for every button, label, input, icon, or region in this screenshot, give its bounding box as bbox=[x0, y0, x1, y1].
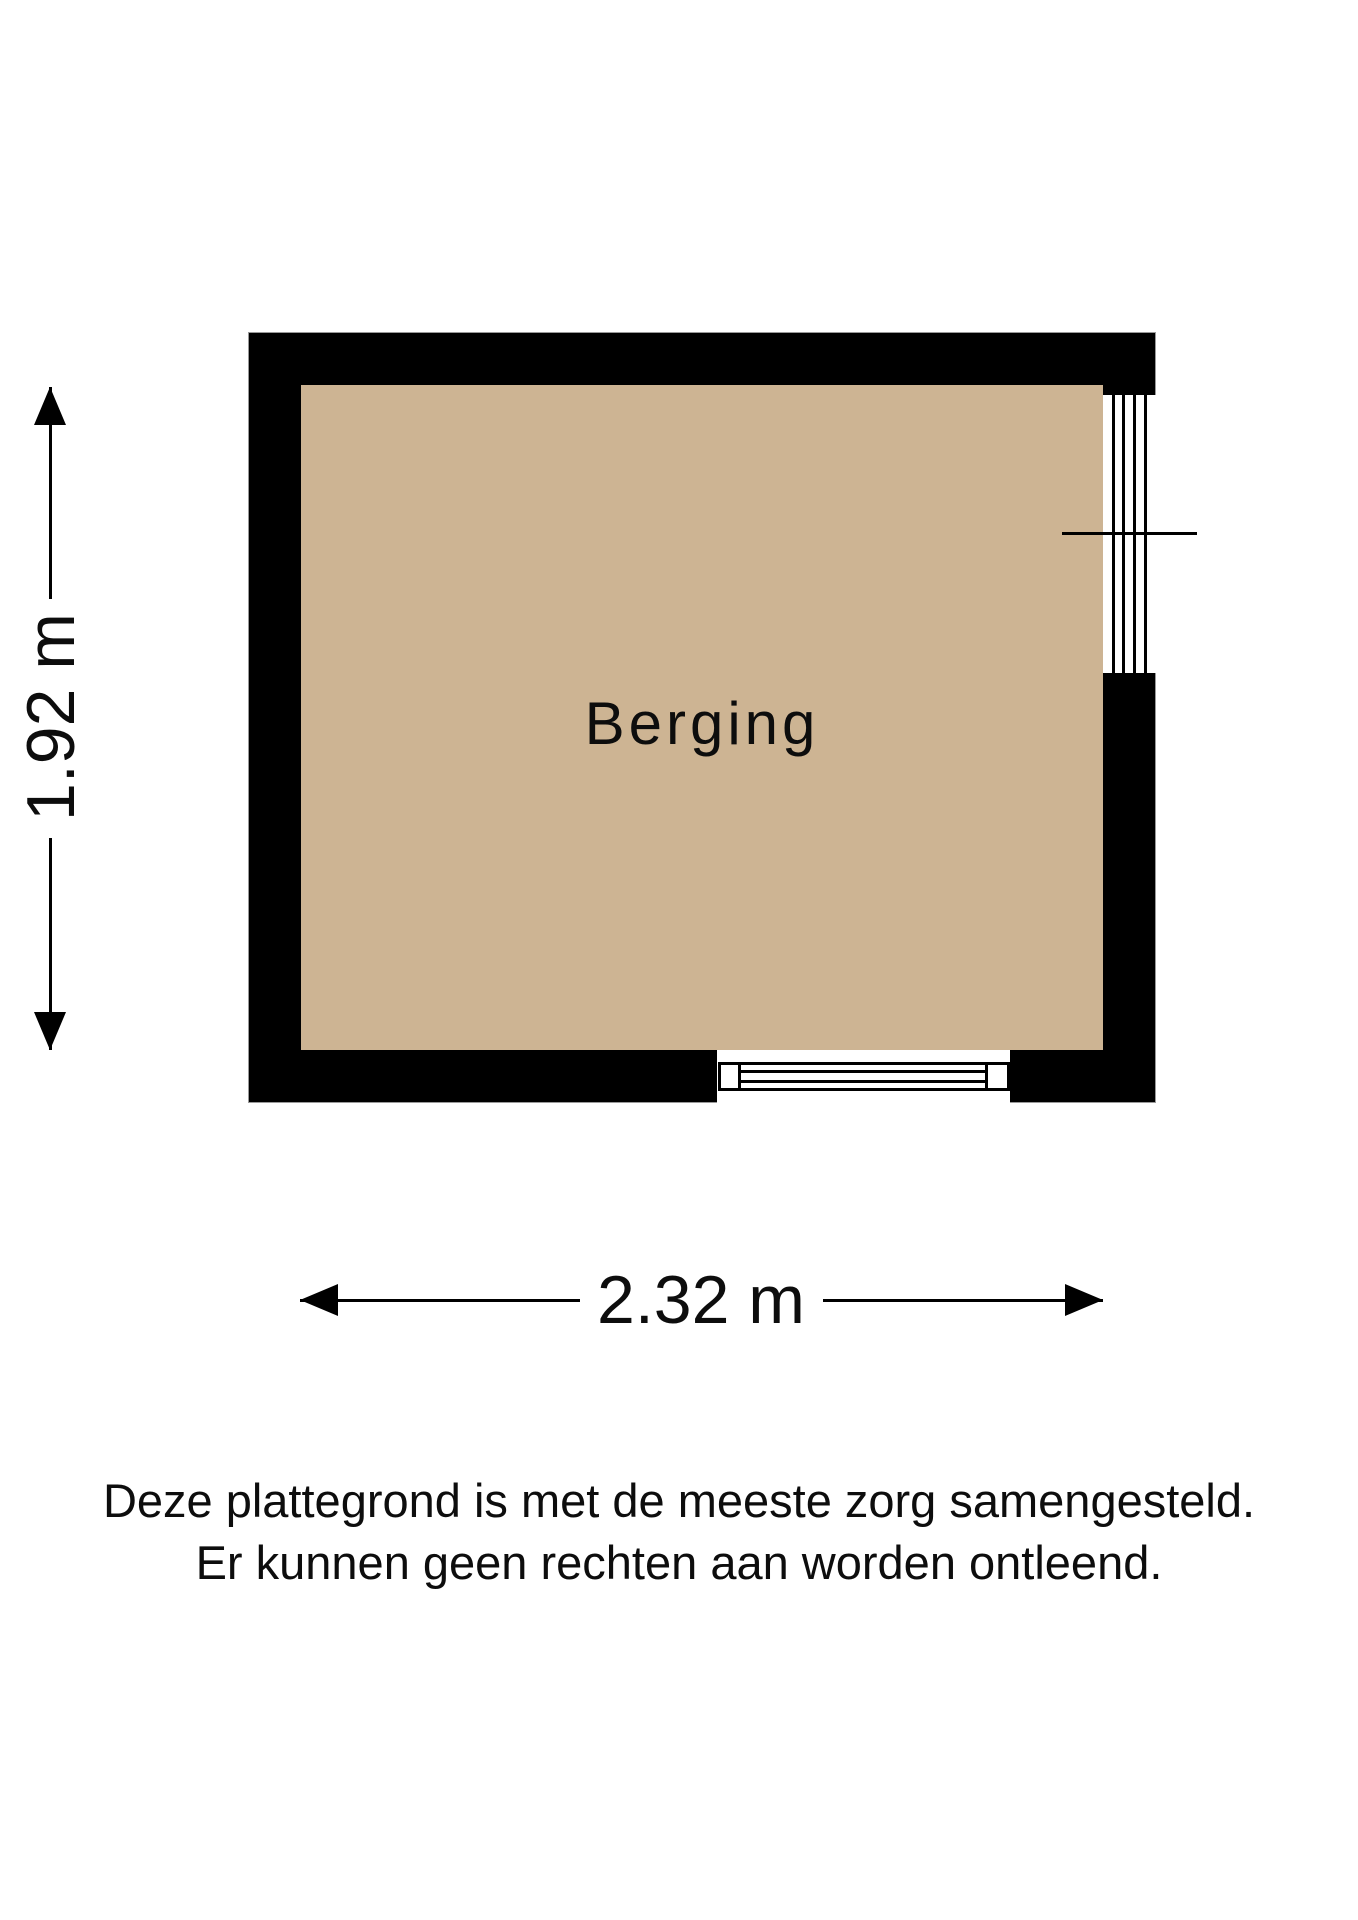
disclaimer-line-2: Er kunnen geen rechten aan worden ontlee… bbox=[0, 1532, 1358, 1594]
width-dimension-line-left bbox=[300, 1299, 580, 1302]
width-dimension-label: 2.32 m bbox=[581, 1265, 821, 1335]
door-jamb-left bbox=[738, 1062, 741, 1091]
door-jamb-right bbox=[985, 1062, 988, 1091]
room-label: Berging bbox=[502, 684, 902, 764]
door-threshold-line bbox=[741, 1070, 985, 1073]
arrowhead-down-icon bbox=[34, 1012, 66, 1050]
disclaimer-text: Deze plattegrond is met de meeste zorg s… bbox=[0, 1470, 1358, 1594]
door-threshold-line bbox=[741, 1080, 985, 1083]
door-threshold bbox=[718, 1062, 1010, 1091]
window-center-marker-line bbox=[1062, 532, 1197, 535]
arrowhead-right-icon bbox=[1065, 1284, 1103, 1316]
disclaimer-line-1: Deze plattegrond is met de meeste zorg s… bbox=[0, 1470, 1358, 1532]
height-dimension-label: 1.92 m bbox=[16, 607, 86, 827]
arrowhead-left-icon bbox=[300, 1284, 338, 1316]
width-dimension-line-right bbox=[823, 1299, 1103, 1302]
arrowhead-up-icon bbox=[34, 387, 66, 425]
floorplan-page: Berging 1.92 m 2.32 m Deze plattegrond i… bbox=[0, 0, 1358, 1920]
